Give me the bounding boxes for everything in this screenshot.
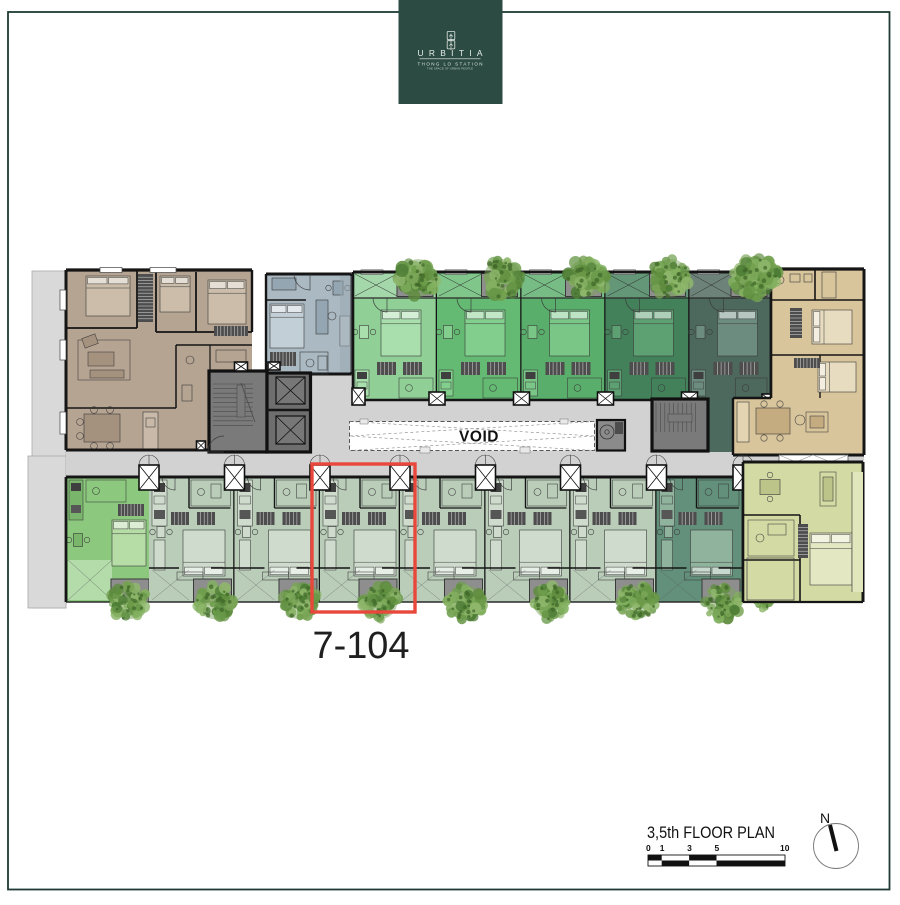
svg-text:5: 5 bbox=[715, 843, 720, 853]
svg-text:VOID: VOID bbox=[459, 429, 499, 446]
svg-text:N: N bbox=[820, 810, 830, 826]
svg-text:7-104: 7-104 bbox=[313, 625, 410, 667]
svg-text:0: 0 bbox=[646, 843, 651, 853]
svg-text:1: 1 bbox=[660, 843, 665, 853]
svg-text:3: 3 bbox=[687, 843, 692, 853]
svg-text:THE SPACE OF URBAN PEOPLE: THE SPACE OF URBAN PEOPLE bbox=[427, 67, 473, 71]
svg-text:10: 10 bbox=[780, 843, 790, 853]
svg-text:3,5th FLOOR PLAN: 3,5th FLOOR PLAN bbox=[647, 824, 775, 842]
